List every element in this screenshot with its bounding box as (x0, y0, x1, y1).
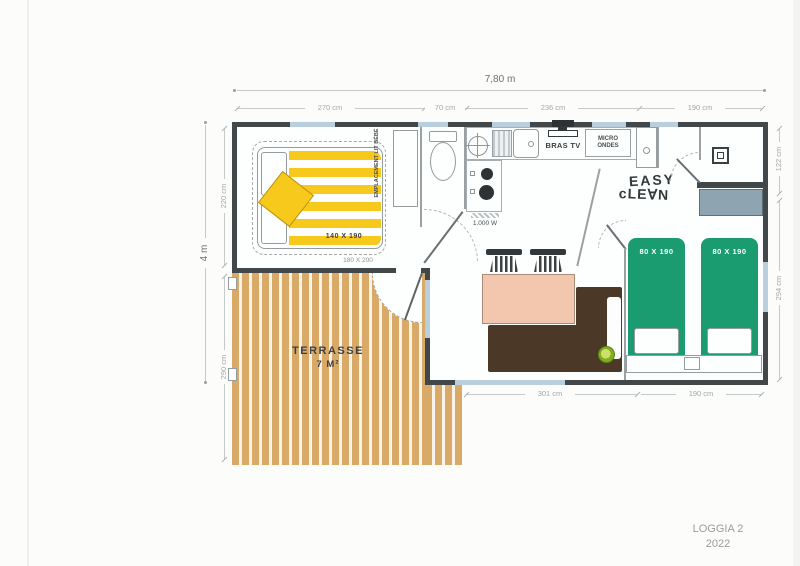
extractor-fan-icon (468, 136, 488, 156)
hob-burner-small (481, 168, 493, 180)
dim-endpoint (233, 89, 236, 92)
scan-artifact-edge (793, 0, 800, 566)
baby-bed-label: EMPLACEMENT LIT BÉBÉ (374, 128, 390, 198)
dim-tick (759, 392, 765, 398)
sink-basin (513, 129, 539, 158)
terrace-label: TERRASSE (278, 345, 378, 357)
window-top-bedroom (290, 122, 335, 127)
window-living-left (425, 280, 430, 338)
wall-shower-bottom (697, 182, 763, 188)
chair-back (486, 249, 522, 255)
dim-right-1: 294 cm (774, 271, 784, 305)
footer-year: 2022 (668, 538, 768, 550)
bed-alt-size-label: 180 X 200 (328, 256, 388, 266)
shower-drain-icon (712, 147, 729, 164)
window-top-wc (418, 122, 448, 127)
terrace-deck-extension (425, 385, 462, 465)
bedside-table (684, 357, 700, 370)
wall-wc-left (420, 127, 422, 227)
wall-basin-right (657, 127, 659, 168)
washbasin-drain-icon (643, 147, 650, 154)
dim-top-2: 236 cm (528, 103, 578, 113)
scan-artifact-line (27, 0, 29, 566)
tv-bracket-stem (558, 126, 567, 130)
dim-line-overall-width (237, 90, 763, 91)
dim-tick (635, 392, 641, 398)
hob-knob (470, 189, 475, 194)
bed-size-label: 140 X 190 (312, 233, 376, 240)
fan-cross-v (477, 133, 478, 158)
dim-tick (760, 106, 766, 112)
shower-drain-inner (717, 152, 724, 159)
dim-overall-width: 7,80 m (460, 74, 540, 86)
window-right-bedroom (763, 262, 768, 312)
dim-top-1: 70 cm (425, 103, 465, 113)
pillow (707, 328, 752, 354)
hob-power-label: 1.000 W (460, 220, 510, 227)
microwave-box: MICRO ONDES (585, 129, 631, 157)
terrace-post (228, 368, 237, 381)
baby-bed-space (393, 130, 418, 207)
footer-model: LOGGIA 2 (668, 523, 768, 535)
tv-bracket-label: BRAS TV (540, 141, 586, 150)
twin-bed-1-size: 80 X 190 (628, 247, 685, 256)
bedroom-terrace-door-gap (396, 268, 421, 273)
chair-seat (534, 256, 562, 272)
wall-left (232, 127, 237, 273)
wardrobe-cabinet (699, 189, 763, 216)
tv-bracket-icon (548, 130, 578, 137)
hob-burner-large (479, 185, 494, 200)
chair-back (530, 249, 566, 255)
wall-right (763, 127, 768, 385)
dim-tick (777, 377, 783, 383)
sink-draining-board (492, 130, 512, 157)
dim-bottom-1: 190 cm (676, 389, 726, 399)
toilet-bowl (430, 142, 456, 181)
hob-vent-hatch (471, 213, 499, 218)
dim-top-3: 190 cm (675, 103, 725, 113)
dim-endpoint (204, 381, 207, 384)
hob-knob (470, 171, 475, 176)
sink-drain-icon (528, 141, 534, 147)
dim-top-0: 270 cm (305, 103, 355, 113)
scanned-floor-plan-page: 7,80 m 270 cm 70 cm 236 cm 190 cm 4 m 22… (0, 0, 800, 566)
dim-right-0: 122 cm (774, 142, 784, 176)
terrace-area-label: 7 M² (278, 359, 378, 370)
microwave-label: MICRO ONDES (593, 136, 623, 150)
dim-bottom-0: 301 cm (525, 389, 575, 399)
twin-bed-2-size: 80 X 190 (701, 247, 758, 256)
window-bottom-living (455, 380, 565, 385)
easyclean-logo-line2: cLE∀N (614, 185, 675, 204)
dim-tick (777, 191, 783, 197)
dim-tick (222, 263, 228, 269)
dim-left-0: 220 cm (219, 179, 229, 213)
dim-endpoint (763, 89, 766, 92)
terrace-post (228, 277, 237, 290)
dim-endpoint (204, 121, 207, 124)
dim-tick (222, 457, 228, 463)
dim-overall-height: 4 m (199, 238, 211, 268)
green-pouf (598, 346, 615, 363)
pillow (634, 328, 679, 354)
dining-table (482, 274, 575, 324)
chair-seat (490, 256, 518, 272)
toilet-tank (429, 131, 457, 142)
